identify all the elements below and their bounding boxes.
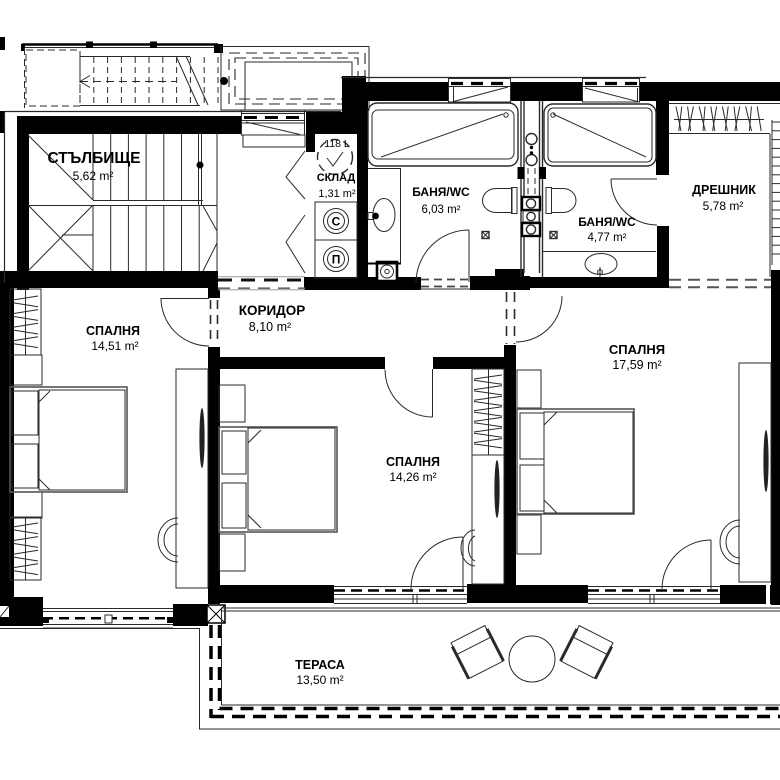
svg-text:17,59 m²: 17,59 m²	[612, 358, 661, 372]
svg-text:СПАЛНЯ: СПАЛНЯ	[86, 324, 140, 338]
svg-text:1,31 m²: 1,31 m²	[318, 188, 356, 200]
svg-text:СТЪЛБИЩЕ: СТЪЛБИЩЕ	[47, 150, 140, 167]
svg-text:13,50 m²: 13,50 m²	[296, 673, 343, 687]
svg-text:118 L: 118 L	[324, 138, 350, 150]
svg-text:БАНЯ/WC: БАНЯ/WC	[412, 185, 470, 199]
svg-text:5,62 m²: 5,62 m²	[73, 169, 114, 183]
svg-text:БАНЯ/WC: БАНЯ/WC	[578, 215, 636, 229]
svg-text:СПАЛНЯ: СПАЛНЯ	[609, 342, 665, 357]
svg-text:8,10 m²: 8,10 m²	[249, 320, 291, 334]
svg-text:14,26 m²: 14,26 m²	[389, 470, 436, 484]
svg-text:5,78 m²: 5,78 m²	[703, 199, 744, 213]
svg-text:4,77 m²: 4,77 m²	[588, 232, 627, 244]
svg-text:СПАЛНЯ: СПАЛНЯ	[386, 455, 440, 469]
svg-text:С: С	[332, 215, 341, 229]
svg-text:ДРЕШНИК: ДРЕШНИК	[692, 183, 756, 197]
svg-text:6,03 m²: 6,03 m²	[422, 204, 461, 216]
svg-text:14,51 m²: 14,51 m²	[91, 339, 138, 353]
svg-text:П: П	[332, 253, 341, 267]
svg-text:ТЕРАСА: ТЕРАСА	[295, 658, 345, 672]
svg-text:СКЛАД: СКЛАД	[317, 172, 356, 184]
svg-text:КОРИДОР: КОРИДОР	[239, 303, 306, 318]
